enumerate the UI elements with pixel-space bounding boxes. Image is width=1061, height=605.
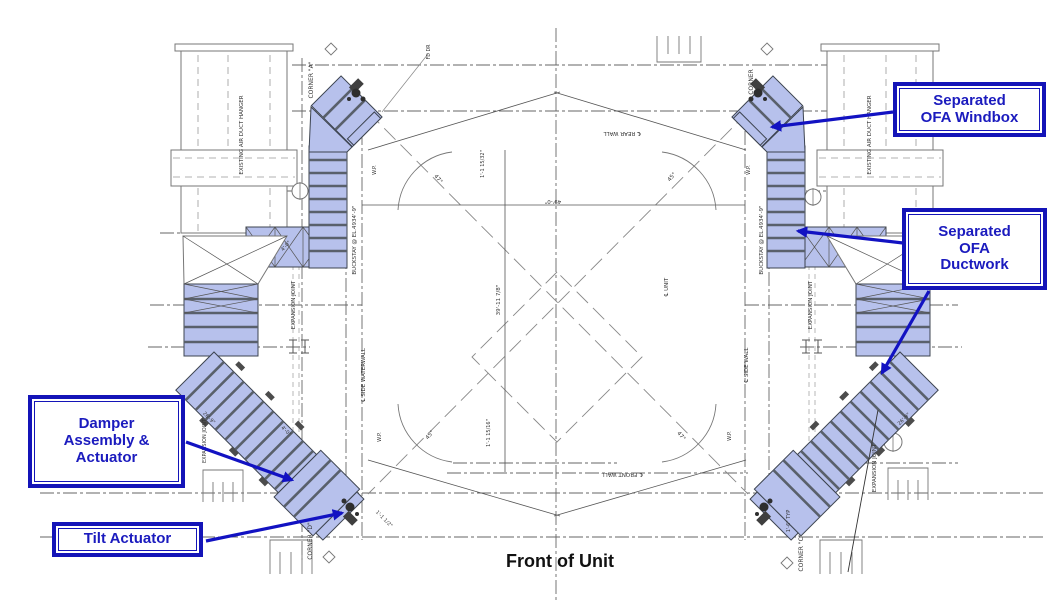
unit-centerline-label: ℄ UNIT [663, 277, 670, 296]
expansion-joint-label-1: EXPANSION JOINT [291, 280, 297, 329]
side-waterwall-label: ℄ SIDE WATERWALL [360, 347, 367, 402]
callout-line: Actuator [32, 450, 181, 467]
ofa-arrangement-drawing: EXISTING AIR DUCT HANGER EXISTING AIR DU… [0, 0, 1061, 605]
dim-1-1-half-label: 1'-1 1/2" [374, 510, 393, 529]
existing-air-duct-right [817, 44, 943, 233]
callout-line: OFA [906, 241, 1043, 258]
callout-line: Separated [906, 224, 1043, 241]
dim-frac-top-label: 1'-1 15/32" [480, 150, 486, 178]
rear-wall-label: ℄ REAR WALL [603, 130, 641, 137]
expansion-joint-label-2: EXPANSION JOINT [202, 418, 208, 463]
corner-c-label: CORNER "C" [798, 534, 805, 571]
front-of-unit-caption: Front of Unit [470, 551, 650, 572]
callout-line: Ductwork [906, 257, 1043, 274]
dim-1-6-typ-label: 1'-6" TYP [786, 510, 792, 533]
existing-air-duct-left [171, 44, 297, 233]
callout-line: Tilt Actuator [56, 531, 199, 548]
angle-45-label-bl: 45° [425, 430, 436, 442]
wp-label-br: W.P. [727, 431, 733, 441]
corner-b-label: CORNER [748, 69, 755, 95]
hanger-label-left: EXISTING AIR DUCT HANGER [239, 95, 245, 174]
expansion-joint-label-3: EXPANSION JOINT [808, 280, 814, 329]
front-wall-label: ℄ FRONT WALL [601, 471, 643, 478]
buckstay-label-right: BUCKSTAY @ EL.4934'-9" [759, 205, 765, 274]
callout-line: Separated [897, 93, 1042, 110]
buckstay-label-left: BUCKSTAY @ EL.4934'-9" [352, 205, 358, 274]
callout-line: OFA Windbox [897, 110, 1042, 127]
angle-47-label-br: 47° [675, 431, 686, 443]
side-wall-label: ℄ SIDE WALL [743, 347, 750, 383]
expansion-joint-label-4: EXPANSION JOINT [872, 443, 878, 492]
dim-49-label: 49'-0" [545, 198, 562, 204]
corner-a-label: CORNER "A" [308, 61, 315, 98]
hanger-label-right: EXISTING AIR DUCT HANGER [867, 95, 873, 174]
dim-frac-bottom-label: 1'-1 15/16" [486, 419, 492, 447]
callout-line: Damper [32, 416, 181, 433]
wp-label-bl: W.P. [377, 432, 383, 442]
dim-39-label: 39'-11 7/8" [496, 285, 502, 316]
callout-separated-ofa-windbox: Separated OFA Windbox [893, 82, 1046, 137]
fd-dr-label: FD DR [426, 44, 432, 60]
wp-label-tr: W.P. [746, 165, 752, 175]
callout-separated-ofa-ductwork: Separated OFA Ductwork [902, 208, 1047, 290]
wp-label-tl: W.P. [372, 165, 378, 175]
angle-47-label-tl: 47° [432, 174, 443, 186]
callout-tilt-actuator: Tilt Actuator [52, 522, 203, 557]
corner-d-label: CORNER "D" [307, 522, 314, 560]
callout-damper-assembly-actuator: Damper Assembly & Actuator [28, 395, 185, 488]
angle-45-label-tr: 45° [667, 172, 678, 184]
ofa-assembly-bottom-left [172, 236, 371, 543]
callout-line: Assembly & [32, 433, 181, 450]
